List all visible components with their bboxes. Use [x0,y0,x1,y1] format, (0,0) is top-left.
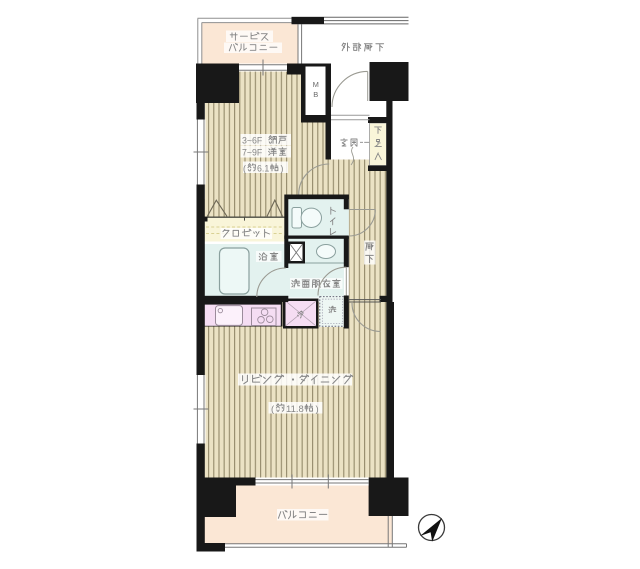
svg-text:B: B [313,90,318,99]
svg-text:3~6F: 3~6F [242,135,263,145]
svg-text:7~9F: 7~9F [242,147,263,157]
svg-text:(: ( [243,163,246,173]
svg-text:11.8: 11.8 [286,404,304,415]
svg-text:): ) [281,163,284,173]
svg-text:6.1: 6.1 [257,163,269,173]
svg-text:): ) [316,404,319,415]
svg-text:M: M [313,80,319,89]
